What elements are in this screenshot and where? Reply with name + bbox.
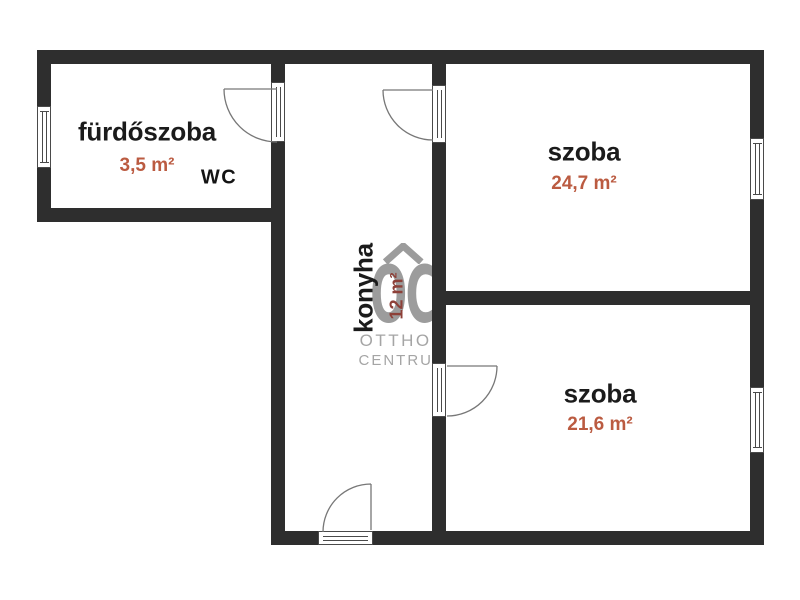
room-label-bathroom: fürdőszoba (78, 117, 216, 148)
door-frame-bathroom (272, 83, 285, 142)
room-area-bathroom: 3,5 m² (120, 155, 175, 177)
window-room-top-right (751, 139, 764, 200)
door-frame-kitchen-top (433, 86, 446, 143)
door-swing-entrance (323, 484, 371, 532)
door-swing-bathroom (224, 89, 277, 142)
room-area-room-top: 24,7 m² (551, 173, 616, 195)
floor-plan: OC OTTHON CENTRUM (0, 0, 800, 600)
door-frame-entrance (319, 532, 373, 545)
room-label-room-top: szoba (548, 137, 621, 168)
room-area-room-bottom: 21,6 m² (567, 414, 632, 436)
door-swing-room-bottom (447, 366, 497, 416)
room-label-room-bottom: szoba (564, 379, 637, 410)
room-area-kitchen: 12 m² (387, 272, 408, 319)
door-frame-room-bottom (433, 364, 446, 417)
window-bathroom-left (38, 107, 51, 168)
room-label-kitchen: konyha (349, 243, 380, 333)
window-room-bottom-right (751, 388, 764, 453)
room-label-wc: WC (201, 167, 237, 190)
door-swing-kitchen-top (383, 90, 433, 140)
